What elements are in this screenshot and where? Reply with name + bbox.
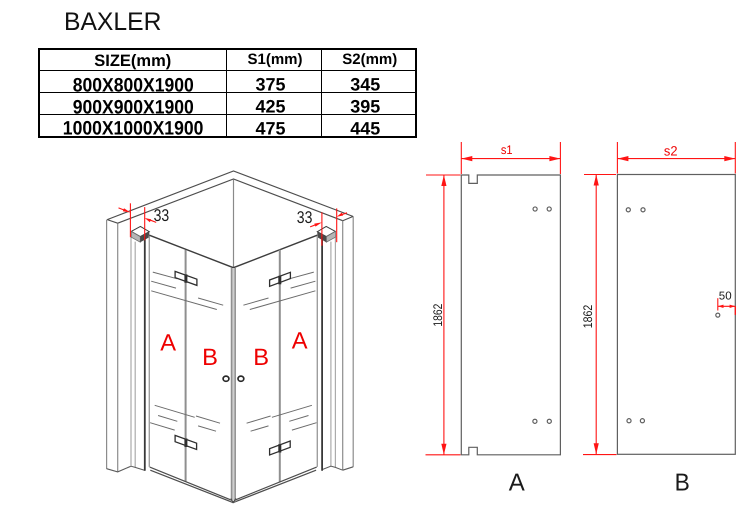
- svg-text:B: B: [253, 345, 269, 371]
- svg-text:1862: 1862: [431, 304, 445, 327]
- svg-text:33: 33: [297, 208, 313, 227]
- svg-text:s1: s1: [501, 143, 513, 157]
- svg-text:B: B: [202, 345, 218, 371]
- svg-text:1862: 1862: [581, 305, 595, 329]
- svg-text:B: B: [675, 469, 690, 496]
- svg-text:A: A: [292, 329, 308, 355]
- svg-text:A: A: [509, 469, 526, 496]
- svg-text:s2: s2: [664, 144, 678, 159]
- svg-text:33: 33: [154, 206, 170, 225]
- svg-text:A: A: [160, 330, 176, 356]
- svg-text:50: 50: [719, 290, 732, 302]
